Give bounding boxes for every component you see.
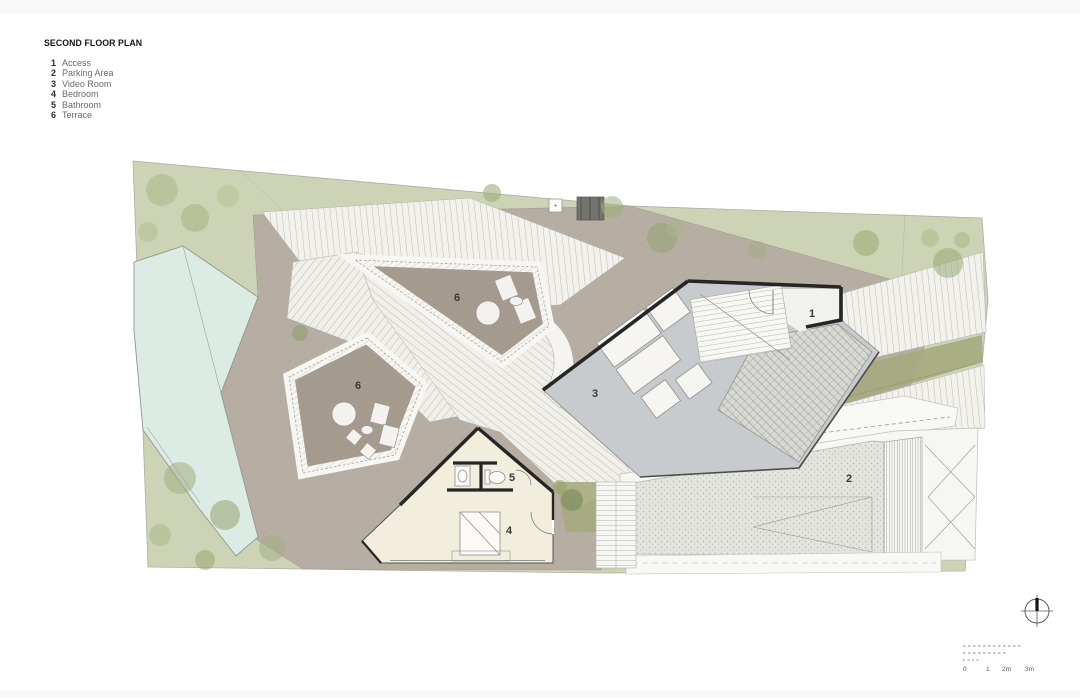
- terrace-upper-label: 6: [454, 292, 460, 304]
- site-plan-drawing: 2: [0, 0, 1080, 698]
- parking-label: 2: [846, 473, 852, 485]
- scale-3m: 3m: [1025, 666, 1034, 673]
- access-label: 1: [809, 308, 815, 320]
- scale-1: 1: [986, 666, 990, 673]
- scale-0: 0: [963, 666, 967, 673]
- scale-2m: 2m: [1002, 666, 1011, 673]
- bathroom-label: 5: [509, 472, 515, 484]
- north-arrow-icon: [1021, 595, 1053, 627]
- video-room-label: 3: [592, 388, 598, 400]
- scale-bar: 0 1 2m 3m: [963, 646, 1034, 673]
- terrace-lower-label: 6: [355, 380, 361, 392]
- garden-stairs: [596, 482, 636, 568]
- floor-plan-page: SECOND FLOOR PLAN 1 Access 2 Parking Are…: [0, 0, 1080, 698]
- bedroom-label: 4: [506, 525, 513, 537]
